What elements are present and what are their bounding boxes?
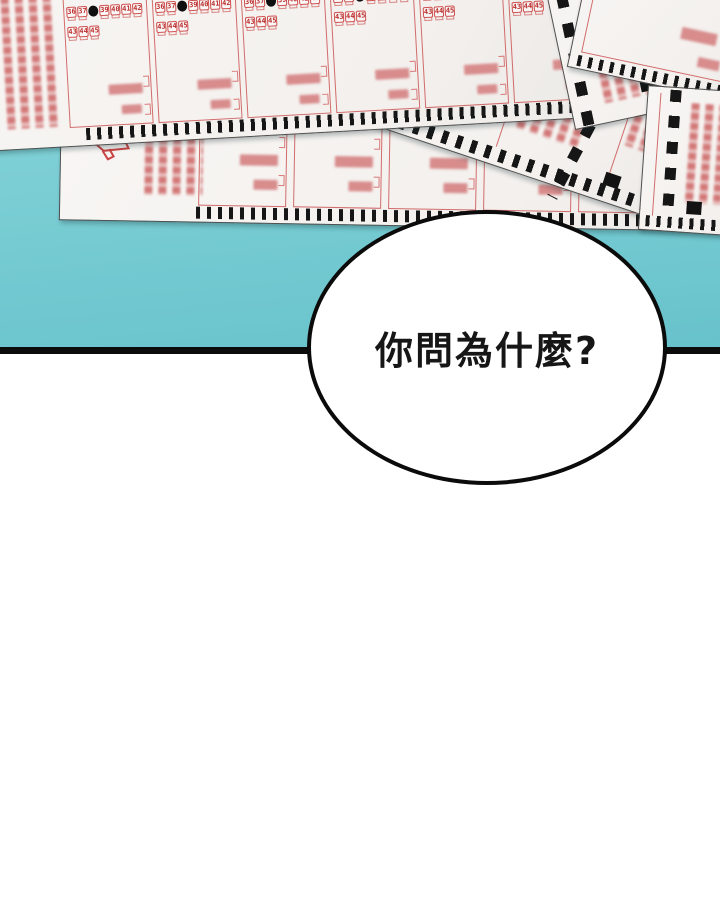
number-grid-row: 434445 — [423, 3, 503, 18]
number-grid-row: 434445 — [245, 13, 325, 28]
play-section: 36373839404142434445 — [411, 0, 509, 108]
number-cell: 44 — [167, 21, 178, 33]
marked-number-cell: 38 — [266, 0, 277, 7]
number-cell: 36 — [66, 7, 77, 19]
number-cell: 43 — [67, 26, 78, 38]
number-cell: 37 — [166, 1, 177, 13]
number-cell: 44 — [434, 6, 445, 18]
marked-number-cell: 38 — [88, 5, 99, 17]
number-cell: 39 — [277, 0, 288, 6]
number-cell: 36 — [333, 0, 344, 3]
speech-bubble: 你問為什麼? — [307, 210, 667, 485]
number-cell: 42 — [221, 0, 232, 9]
number-grid-row: 36373839404142 — [155, 0, 235, 13]
number-cell: 39 — [99, 5, 110, 17]
section-divider-line — [652, 93, 662, 216]
blurred-red-numbers — [0, 0, 64, 130]
marked-number-cell: 38 — [355, 0, 366, 2]
number-cell: 42 — [132, 3, 143, 15]
number-grid-row: 36373839404142 — [66, 3, 146, 18]
bold-timing-marks — [662, 90, 682, 217]
number-cell: 36 — [155, 2, 166, 14]
number-cell: 44 — [522, 1, 533, 13]
number-cell: 44 — [256, 16, 267, 28]
number-cell: 40 — [377, 0, 388, 1]
number-cell: 41 — [299, 0, 310, 5]
number-cell: 42 — [310, 0, 321, 4]
speech-text: 你問為什麼? — [375, 320, 599, 375]
number-cell: 39 — [366, 0, 377, 1]
blurred-red-numbers — [685, 103, 720, 207]
marked-black-square — [686, 201, 702, 215]
number-cell: 37 — [255, 0, 266, 8]
number-grid-row: 36373839404142 — [244, 0, 324, 8]
number-cell: 39 — [188, 0, 199, 11]
play-section: 36373839404142434445 — [145, 0, 243, 123]
play-section: 36373839404142434445 — [234, 0, 332, 118]
number-cell: 45 — [356, 10, 367, 22]
number-grid-row: 434445 — [67, 23, 147, 38]
blurred-red-numbers — [144, 137, 203, 196]
number-cell: 44 — [345, 11, 356, 23]
number-cell: 45 — [445, 5, 456, 17]
number-cell: 44 — [78, 26, 89, 38]
number-cell: 41 — [210, 0, 221, 10]
number-grid-row: 36373839404142 — [333, 0, 413, 3]
number-cell: 37 — [344, 0, 355, 3]
number-cell: 43 — [511, 2, 522, 14]
number-cell: 43 — [334, 12, 345, 24]
marked-number-cell: 38 — [177, 0, 188, 12]
play-section: 36373839404142434445 — [322, 0, 420, 113]
number-cell: 36 — [244, 0, 255, 8]
number-cell: 43 — [423, 7, 434, 19]
lotto-slip-right — [638, 85, 720, 239]
number-cell: 40 — [288, 0, 299, 6]
number-cell: 41 — [121, 3, 132, 15]
number-grid-row: 434445 — [156, 18, 236, 33]
number-cell: 45 — [178, 20, 189, 32]
number-cell: 37 — [77, 6, 88, 18]
number-cell: 43 — [156, 22, 167, 34]
comic-panel: 3637383940414243444536373839404142434445… — [0, 0, 720, 918]
number-cell: 40 — [110, 4, 121, 16]
number-cell: 45 — [267, 15, 278, 27]
number-cell: 45 — [89, 25, 100, 37]
number-cell: 43 — [245, 17, 256, 29]
number-cell: 45 — [533, 0, 544, 12]
number-cell: 40 — [199, 0, 210, 11]
play-section: 36373839404142434445 — [56, 0, 154, 128]
number-grid-row: 434445 — [334, 8, 414, 23]
